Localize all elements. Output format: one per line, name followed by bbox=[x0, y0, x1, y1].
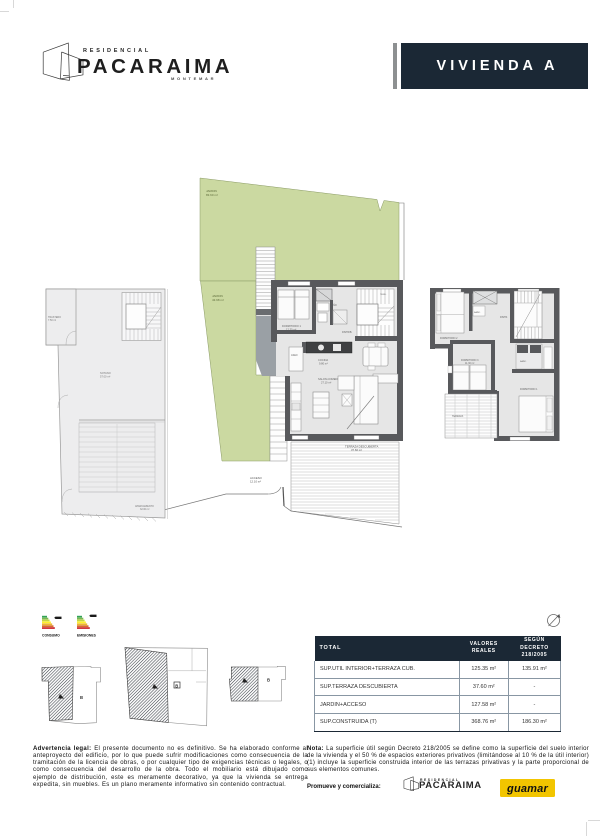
svg-text:32.00 m²: 32.00 m² bbox=[140, 508, 150, 511]
svg-text:DISTRIB.: DISTRIB. bbox=[342, 331, 352, 334]
svg-text:83.60 m²: 83.60 m² bbox=[206, 193, 218, 197]
svg-text:37.60 m²: 37.60 m² bbox=[351, 448, 362, 452]
svg-text:DISTR.: DISTR. bbox=[500, 316, 508, 319]
svg-text:TERRAZA: TERRAZA bbox=[452, 415, 464, 418]
svg-text:43.98 m²: 43.98 m² bbox=[212, 298, 224, 302]
svg-text:COCINA: COCINA bbox=[318, 358, 328, 362]
svg-text:12.10 m²: 12.10 m² bbox=[250, 480, 261, 484]
svg-text:CONSUMO: CONSUMO bbox=[42, 634, 60, 638]
svg-text:B: B bbox=[267, 678, 270, 683]
svg-text:SOTANO: SOTANO bbox=[100, 371, 111, 375]
svg-text:DORMITORIO 1: DORMITORIO 1 bbox=[520, 388, 538, 391]
svg-text:9.80 m²: 9.80 m² bbox=[319, 362, 328, 366]
svg-text:B: B bbox=[175, 683, 178, 688]
svg-text:DORMITORIO 2: DORMITORIO 2 bbox=[440, 337, 458, 340]
svg-text:DORMITORIO 1: DORMITORIO 1 bbox=[282, 324, 302, 328]
svg-text:7.50 m²: 7.50 m² bbox=[48, 319, 56, 322]
svg-text:11.30 m²: 11.30 m² bbox=[465, 362, 474, 365]
svg-text:EMISIONES: EMISIONES bbox=[77, 634, 97, 638]
svg-text:57.00 m²: 57.00 m² bbox=[100, 375, 110, 379]
svg-text:BAÑO: BAÑO bbox=[474, 311, 480, 314]
svg-text:27.10 m²: 27.10 m² bbox=[321, 381, 331, 385]
svg-text:ASEO: ASEO bbox=[291, 354, 298, 357]
svg-text:BAÑO: BAÑO bbox=[520, 360, 526, 363]
svg-text:TEND.: TEND. bbox=[380, 294, 387, 296]
svg-text:B: B bbox=[80, 695, 83, 700]
